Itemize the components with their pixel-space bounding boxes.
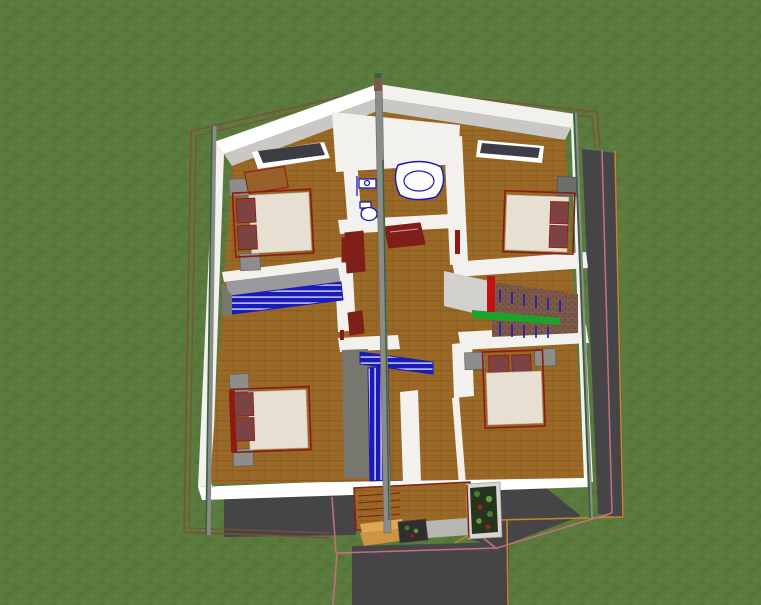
3d-view-canvas[interactable]	[0, 0, 761, 605]
tall-planter[interactable]	[466, 482, 502, 539]
console-table[interactable]	[384, 223, 425, 248]
flower-box-plant	[405, 526, 410, 531]
mattress	[249, 192, 312, 253]
flower-box-plant	[414, 529, 418, 533]
wall-center-lower	[400, 390, 421, 483]
wall-hall-south	[338, 335, 400, 352]
pillow	[549, 225, 568, 248]
pillow	[235, 418, 255, 442]
hall-wardrobe-red[interactable]	[345, 231, 365, 273]
pillow	[489, 355, 510, 373]
planter-foliage	[476, 518, 482, 524]
pillow	[236, 198, 256, 223]
wall-hall-east	[452, 342, 474, 398]
house	[198, 84, 593, 500]
door-frame-red-2	[340, 330, 344, 340]
entrance-porch[interactable]	[354, 482, 502, 546]
flower-box[interactable]	[398, 519, 428, 543]
pillow	[512, 354, 532, 372]
pillow	[234, 393, 254, 417]
corner-bathtub[interactable]	[395, 161, 443, 199]
planter-foliage	[486, 525, 491, 530]
mattress	[486, 371, 543, 425]
planter-foliage	[486, 496, 492, 502]
center-pole-tip	[375, 73, 381, 78]
red-newel-post	[487, 276, 495, 312]
planter-foliage	[474, 491, 480, 497]
planter-foliage	[477, 504, 482, 509]
mattress	[248, 390, 308, 450]
pillow	[237, 225, 257, 250]
hall-cabinet-red[interactable]	[348, 311, 364, 335]
pillow	[550, 201, 569, 224]
nightstand[interactable]	[534, 349, 556, 367]
door-frame-red-1	[455, 230, 460, 254]
flower-box-plant	[410, 534, 414, 538]
planter-foliage	[487, 511, 493, 517]
stairwell-opening	[342, 349, 370, 478]
